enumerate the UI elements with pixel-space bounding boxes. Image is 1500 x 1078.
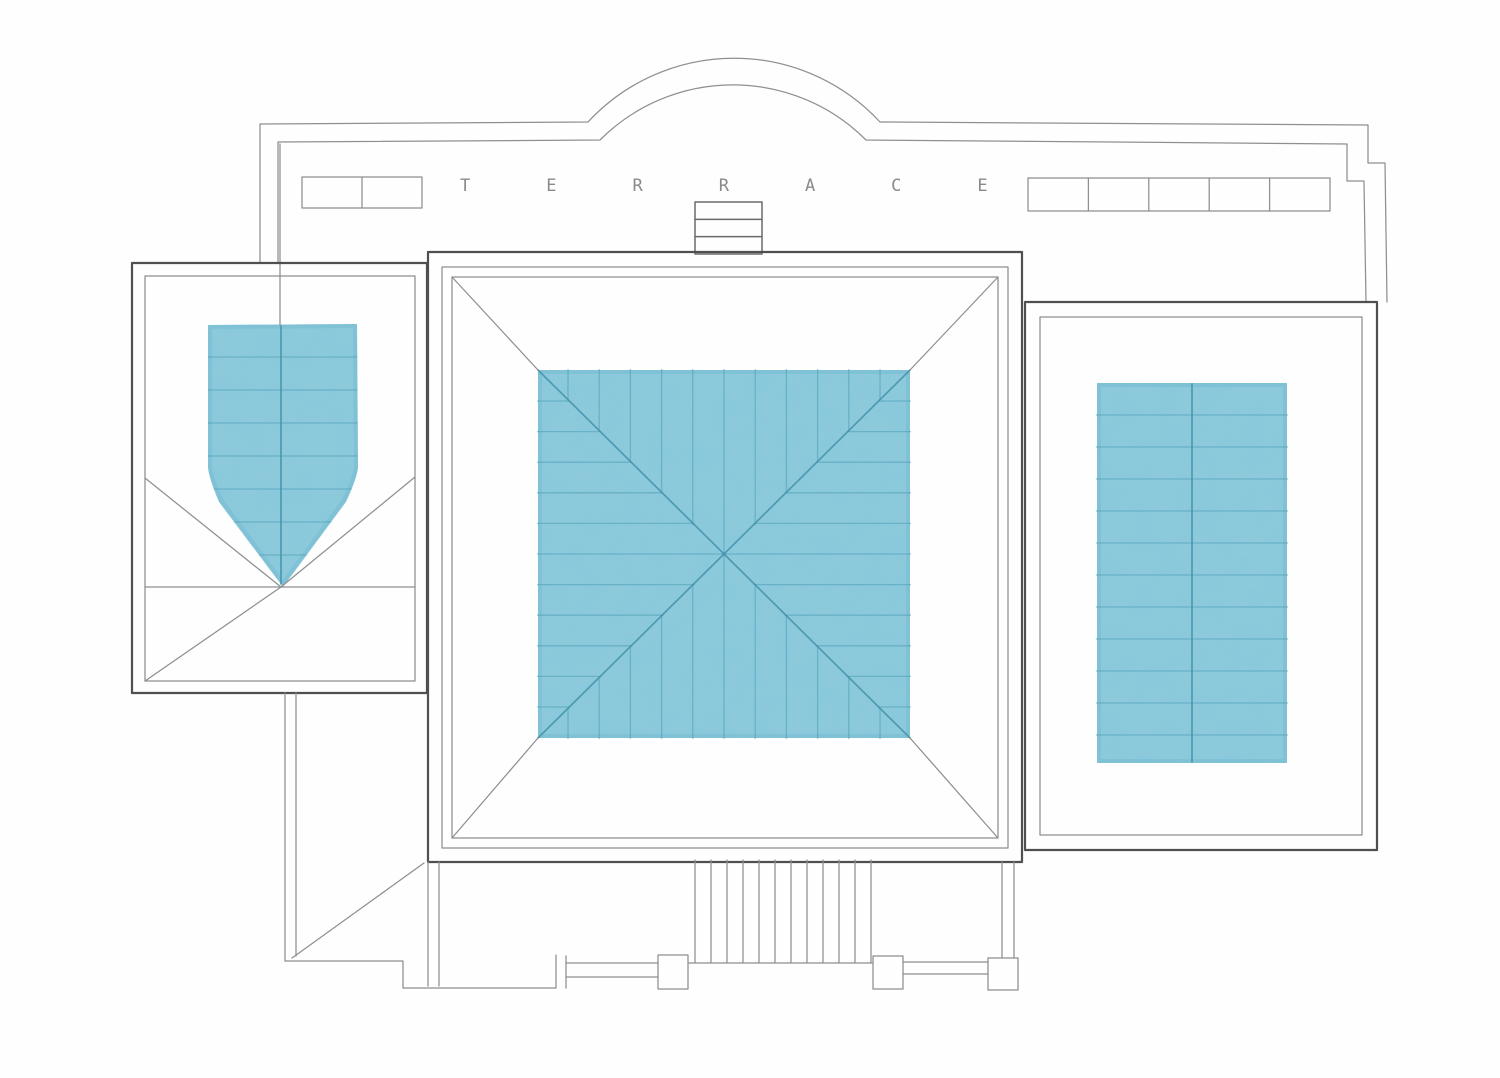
balustrade-post [873,956,903,989]
skylight-strip-right-frame [1028,178,1330,211]
balustrade-post [658,955,688,989]
entrance-stairs [688,860,872,963]
balustrade [566,862,1018,990]
skylight-strip-right [1028,178,1330,211]
right-wing-roof [1025,302,1377,850]
balustrade-post [988,958,1018,990]
main-roof-hip-ext-nw [452,277,538,370]
roof-plan-canvas: TERRACE [0,0,1500,1078]
left-wing-roof [132,144,427,693]
terrace-label: TERRACE [460,176,1064,196]
left-porch [285,693,566,988]
left-wing-valley [145,587,281,681]
roof-plan-page: TERRACE [0,0,1500,1078]
main-roof-hip-ext-se [910,738,998,838]
porch-bottom-edge [285,961,556,988]
chimney [695,202,762,254]
porch-valley [292,863,424,958]
chimney-outline [695,202,762,254]
main-roof-hip-ext-sw [452,738,538,838]
main-roof-hip-ext-ne [910,277,998,370]
main-roof [428,252,1022,862]
skylight-strip-left [302,177,422,208]
